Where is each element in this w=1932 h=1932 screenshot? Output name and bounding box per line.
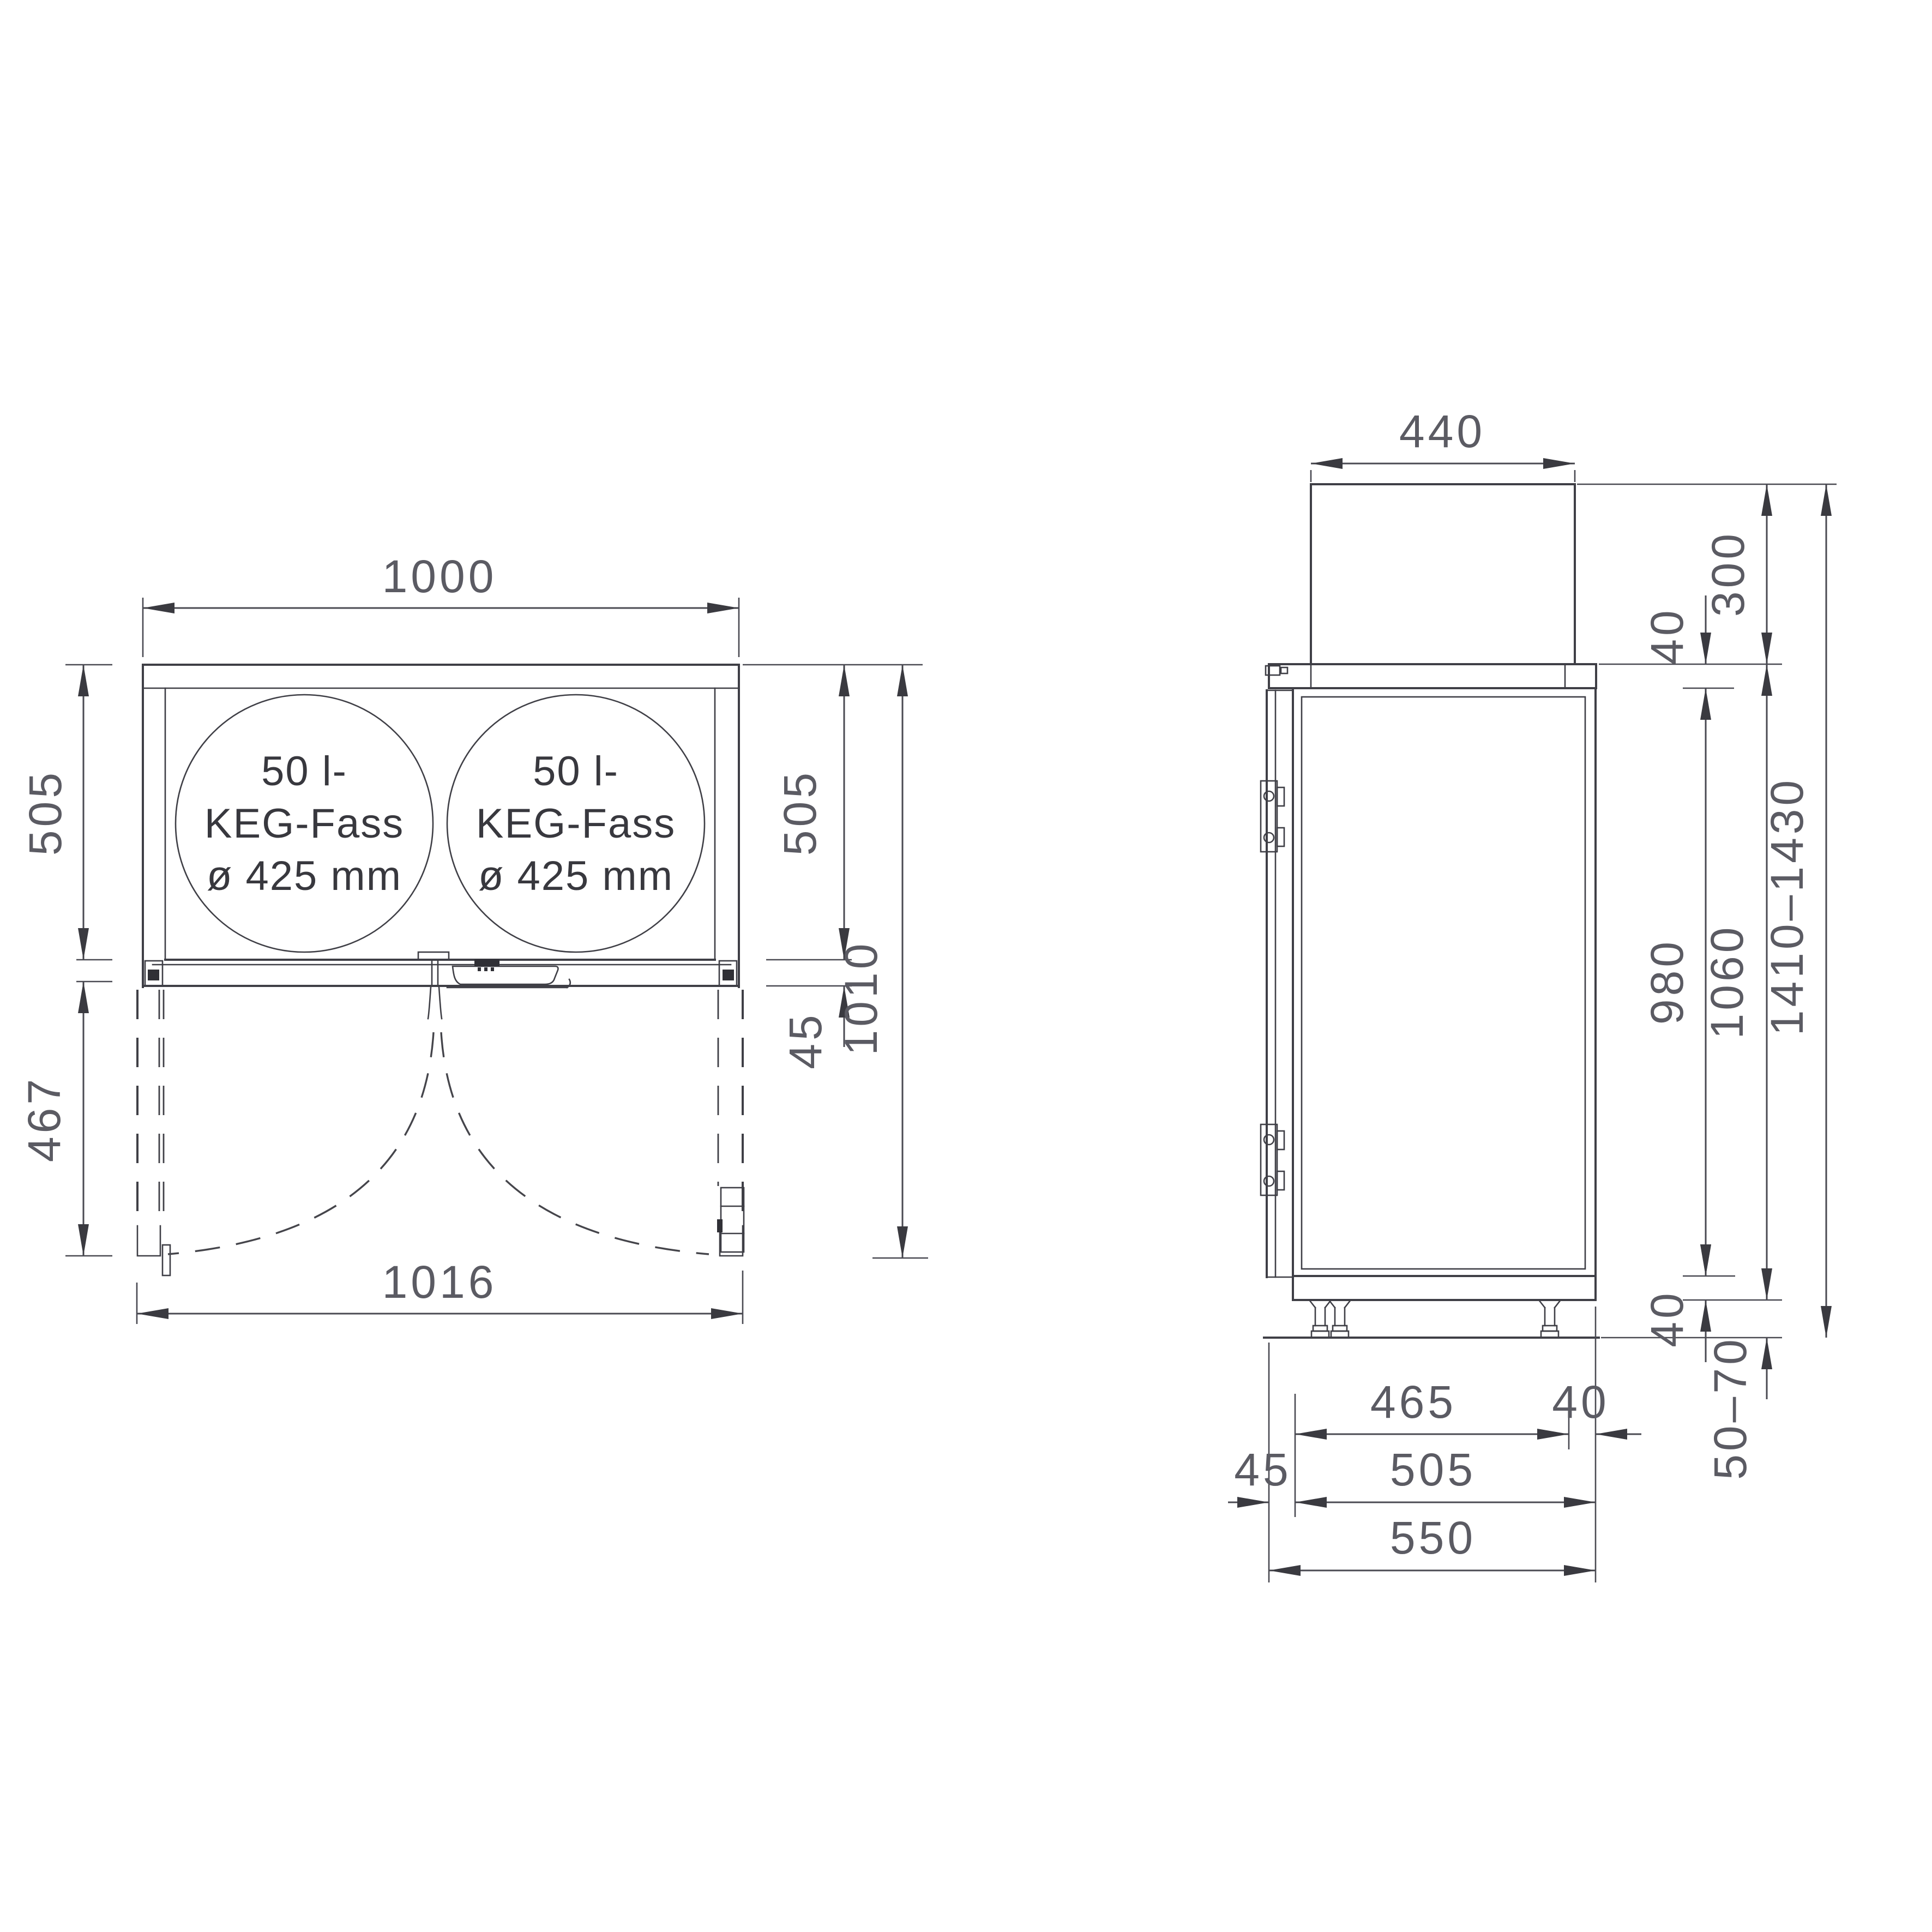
- dim-side-interior-depth: 465: [1295, 1376, 1569, 1434]
- dim-side-base-height-label: 40: [1641, 1290, 1693, 1347]
- keg-left-line2: KEG-Fass: [204, 801, 405, 847]
- door-swing-arc-left: [168, 1032, 434, 1254]
- dim-side-total-depth-label: 550: [1390, 1512, 1476, 1563]
- foot: [1329, 1300, 1351, 1338]
- foot: [1539, 1300, 1561, 1338]
- dim-side-total-height-label: 1410–1430: [1761, 777, 1813, 1036]
- side-feet: [1309, 1300, 1561, 1338]
- dim-side-body-height: 1060: [1701, 664, 1767, 1300]
- dim-plan-width-open-label: 1016: [382, 1256, 497, 1308]
- keg-cooler-technical-drawing: 1000 50 l- KEG-Fass ø 425 mm 50 l- KEG-F…: [0, 0, 1932, 1932]
- foot: [1309, 1300, 1331, 1338]
- keg-right-line3: ø 425 mm: [478, 853, 673, 899]
- dim-side-body-height-label: 1060: [1701, 924, 1753, 1039]
- side-keg-box: [1311, 484, 1575, 664]
- side-lid: [1266, 664, 1596, 688]
- keg-right-line1: 50 l-: [533, 748, 619, 795]
- side-door: [1267, 690, 1293, 1277]
- dim-side-door-thickness: 45: [1228, 1444, 1292, 1502]
- keg-circle-left: 50 l- KEG-Fass ø 425 mm: [176, 695, 433, 952]
- dim-side-body-depth: 505: [1295, 1444, 1596, 1502]
- side-base: [1293, 1276, 1596, 1300]
- dim-side-keg-height: 300: [1702, 484, 1767, 664]
- dim-plan-depth-left: 505: [20, 665, 112, 960]
- side-body: [1293, 688, 1596, 1276]
- dim-side-back-gap-label: 40: [1552, 1376, 1609, 1428]
- dim-plan-width-top-label: 1000: [382, 551, 497, 602]
- dim-side-door-thickness-label: 45: [1234, 1444, 1291, 1495]
- dim-plan-door-swing-label: 467: [19, 1076, 70, 1162]
- plan-open-door-left: [137, 990, 170, 1275]
- keg-right-line2: KEG-Fass: [476, 801, 676, 847]
- dim-side-keg-width: 440: [1311, 406, 1575, 482]
- dim-side-feet-range: 50–70: [1705, 1336, 1767, 1480]
- dim-side-back-gap: 40: [1552, 1376, 1641, 1434]
- dim-plan-depth-right: 505: [743, 665, 923, 986]
- dim-plan-depth-total: 1010: [835, 665, 928, 1258]
- dim-plan-width-open: 1016: [137, 1256, 743, 1324]
- dim-plan-front-gap: 45: [780, 986, 844, 1069]
- dim-side-total-height: 1410–1430: [1761, 484, 1826, 1338]
- dim-plan-door-swing: 467: [19, 982, 112, 1256]
- dim-side-feet-range-label: 50–70: [1705, 1336, 1756, 1480]
- dim-side-door-height-label: 980: [1641, 938, 1693, 1025]
- plan-drip-tray: [447, 959, 570, 988]
- dim-side-base-height: 40: [1641, 1214, 1706, 1362]
- keg-left-line1: 50 l-: [261, 748, 347, 795]
- door-swing-arc-right: [441, 1032, 709, 1254]
- plan-open-door-right: [717, 990, 744, 1256]
- dim-side-interior-depth-label: 465: [1370, 1376, 1456, 1428]
- dim-side-lid-thickness: 40: [1641, 595, 1706, 665]
- plan-view: 1000 50 l- KEG-Fass ø 425 mm 50 l- KEG-F…: [19, 551, 928, 1324]
- side-hinge-top: [1261, 781, 1284, 852]
- dim-plan-depth-total-label: 1010: [835, 941, 887, 1056]
- plan-door-handle-left: [162, 1245, 170, 1275]
- side-hinge-bottom: [1261, 1124, 1284, 1195]
- keg-left-line3: ø 425 mm: [207, 853, 402, 899]
- dim-side-body-depth-label: 505: [1390, 1444, 1476, 1495]
- keg-circle-right: 50 l- KEG-Fass ø 425 mm: [447, 695, 705, 952]
- dim-side-keg-width-label: 440: [1399, 406, 1485, 457]
- dim-side-lid-thickness-label: 40: [1641, 607, 1693, 664]
- dim-side-keg-height-label: 300: [1702, 531, 1754, 617]
- dim-plan-depth-right-label: 505: [774, 769, 826, 856]
- dim-plan-front-gap-label: 45: [780, 1012, 831, 1069]
- dim-plan-width-top: 1000: [143, 551, 739, 657]
- side-view: 440: [1228, 406, 1837, 1582]
- dim-side-total-depth: 550: [1269, 1512, 1596, 1570]
- dim-plan-depth-left-label: 505: [20, 769, 71, 856]
- plan-door-latch-right: [717, 1188, 744, 1252]
- dim-side-door-height: 980: [1641, 688, 1706, 1276]
